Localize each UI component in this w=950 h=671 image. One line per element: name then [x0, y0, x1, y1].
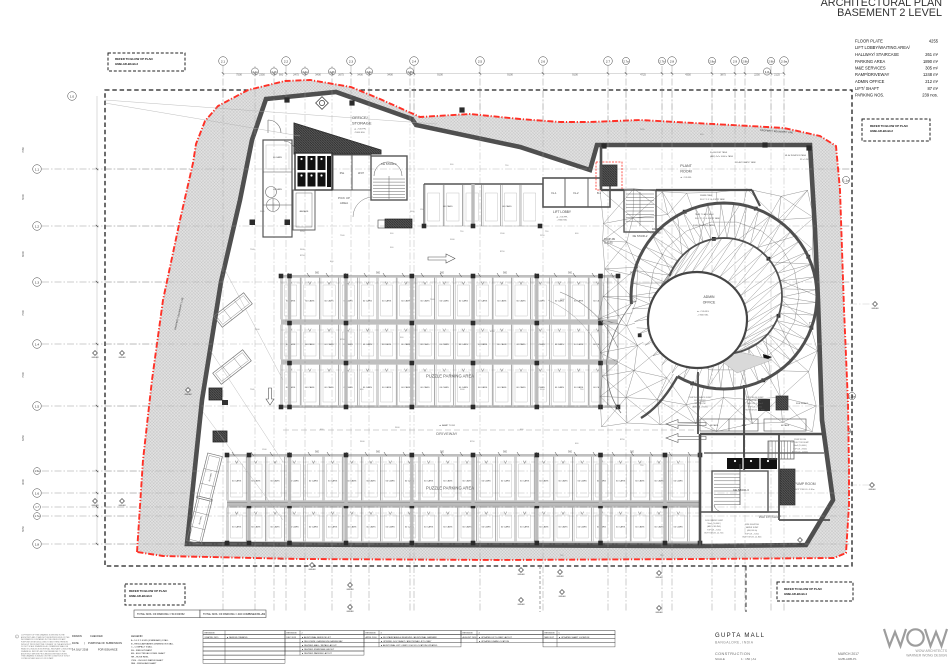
svg-text:5050: 5050	[21, 526, 25, 532]
svg-text:5m3 BELOW: 5m3 BELOW	[749, 400, 760, 402]
svg-text:900: 900	[315, 451, 320, 454]
svg-text:GMB-AR: GMB-AR	[91, 356, 99, 359]
svg-text:▲ RAMP TO B1: ▲ RAMP TO B1	[439, 424, 456, 427]
svg-text:REFER TO BLOW UP PLAN: REFER TO BLOW UP PLAN	[784, 587, 822, 591]
svg-text:60 CARS: 60 CARS	[366, 526, 376, 529]
svg-text:60 CARS: 60 CARS	[324, 343, 334, 346]
svg-text:2250: 2250	[754, 73, 760, 77]
svg-text:PLANT: PLANT	[680, 164, 692, 168]
svg-text:60 CARS: 60 CARS	[555, 343, 565, 346]
svg-text:1.6: 1.6	[35, 491, 40, 495]
svg-text:▲ NEW B3 CREATED: ▲ NEW B3 CREATED	[227, 636, 248, 639]
svg-text:2.3a: 2.3a	[366, 70, 372, 74]
svg-text:RAMP/DRIVEWAY: RAMP/DRIVEWAY	[855, 72, 890, 77]
svg-text:W-07: W-07	[358, 172, 364, 175]
svg-text:900: 900	[568, 272, 573, 275]
svg-text:MARCH 2017: MARCH 2017	[838, 652, 859, 656]
svg-text:60 CARS: 60 CARS	[443, 526, 453, 529]
svg-text:2.9: 2.9	[733, 59, 738, 63]
svg-text:▲ -7.05 FFL: ▲ -7.05 FFL	[556, 216, 568, 219]
svg-text:GMB-AR-B3-BL0: GMB-AR-B3-BL0	[129, 594, 152, 598]
svg-text:900: 900	[279, 73, 284, 77]
svg-text:60 CARS: 60 CARS	[251, 526, 261, 529]
svg-text:7500: 7500	[236, 73, 242, 77]
svg-text:60 CARS: 60 CARS	[574, 343, 584, 346]
svg-text:60 CARS: 60 CARS	[654, 526, 664, 529]
svg-text:60 CARS: 60 CARS	[516, 343, 526, 346]
svg-text:-7.800 SSL: -7.800 SSL	[557, 220, 568, 222]
svg-text:-7.800 SSL: -7.800 SSL	[354, 132, 366, 134]
svg-text:900: 900	[568, 451, 573, 454]
svg-text:3400: 3400	[315, 73, 321, 77]
svg-text:FHE SHAFT: FHE SHAFT	[796, 402, 809, 405]
svg-text:900: 900	[376, 272, 381, 275]
svg-text:60 CARS: 60 CARS	[270, 480, 280, 483]
svg-text:MAY 2017: MAY 2017	[545, 636, 555, 639]
svg-text:60 CARS: 60 CARS	[459, 300, 469, 303]
svg-text:900: 900	[630, 451, 635, 454]
svg-text:AREA: AREA	[340, 201, 348, 205]
svg-text:TOTAL NOS. OF PARKING = 54 FOR: TOTAL NOS. OF PARKING = 54 FOR B2	[137, 612, 185, 616]
svg-text:PARKING NOS.: PARKING NOS.	[855, 93, 884, 98]
svg-text:GMB-AR: GMB-AR	[871, 307, 879, 310]
svg-text:60 CARS: 60 CARS	[502, 205, 512, 208]
svg-text:FH - FIRE HYDRANT: FH - FIRE HYDRANT	[131, 649, 153, 652]
svg-text:(ABV) 2x7x 1000 ltr TANK: (ABV) 2x7x 1000 ltr TANK	[710, 155, 734, 158]
svg-text:(400,000 ltr): (400,000 ltr)	[747, 529, 758, 532]
svg-text:60 CARS: 60 CARS	[420, 300, 430, 303]
svg-text:SPARE TANK: SPARE TANK	[700, 194, 713, 197]
svg-text:FSL: FSL	[340, 172, 345, 175]
svg-text:BOTTOM LVL -11.80m: BOTTOM LVL -11.80m	[742, 536, 761, 538]
svg-text:A - 5.4 X 2.4 M/S (STANDA: A - 5.4 X 2.4 M/S (STANDARD) STALL	[131, 639, 169, 642]
svg-text:60 CARS: 60 CARS	[555, 386, 565, 389]
svg-text:52 x 1.2K 3 Mtr: 52 x 1.2K 3 Mtr	[800, 158, 814, 161]
svg-text:WOW ARCHITECTS: WOW ARCHITECTS	[916, 649, 948, 653]
svg-text:B-1: B-1	[597, 192, 601, 195]
svg-text:DOM. WATER SUMP: DOM. WATER SUMP	[705, 519, 724, 522]
svg-text:3875: 3875	[720, 73, 726, 77]
svg-text:30.5 T 2.5 1 4.5 WTR TANK: 30.5 T 2.5 1 4.5 WTR TANK	[700, 198, 725, 201]
svg-text:3000: 3000	[21, 479, 25, 485]
svg-text:FIRE FIGHTING: FIRE FIGHTING	[745, 524, 759, 526]
svg-text:1.1a: 1.1a	[843, 178, 849, 182]
svg-text:TOP LVL -7.05m: TOP LVL -7.05m	[707, 529, 721, 531]
svg-text:900: 900	[503, 272, 508, 275]
svg-text:PUMP ROOM: PUMP ROOM	[794, 439, 806, 441]
svg-text:60 CARS: 60 CARS	[363, 343, 373, 346]
svg-text:60 CARS: 60 CARS	[309, 526, 319, 529]
svg-text:2.4: 2.4	[412, 59, 417, 63]
svg-text:SCALE: SCALE	[715, 657, 725, 661]
svg-text:60 CARS: 60 CARS	[382, 300, 392, 303]
svg-text:900: 900	[440, 451, 445, 454]
svg-text:60 CARS: 60 CARS	[382, 386, 392, 389]
svg-text:1.8: 1.8	[35, 542, 40, 546]
svg-text:60 CARS: 60 CARS	[478, 343, 488, 346]
svg-text:60 CARS: 60 CARS	[386, 480, 396, 483]
svg-text:2.2a: 2.2a	[302, 70, 308, 74]
svg-text:2.8b: 2.8b	[742, 59, 748, 63]
svg-text:60 CARS: 60 CARS	[462, 480, 472, 483]
svg-text:REFER TO BLOW UP PLAN: REFER TO BLOW UP PLAN	[129, 589, 167, 593]
svg-text:60 CARS: 60 CARS	[578, 526, 588, 529]
svg-text:60 CARS: 60 CARS	[497, 300, 507, 303]
svg-text:(FULL/DELETED TANK): (FULL/DELETED TANK)	[693, 224, 715, 227]
svg-text:24 APRIL 2015: 24 APRIL 2015	[205, 636, 220, 639]
svg-text:GMB-AR: GMB-AR	[655, 576, 663, 579]
svg-text:▲ UPSIZED GOV. SHAFT / ADDIT: ▲ UPSIZED GOV. SHAFT / ADDITIONAL LIFT L…	[381, 640, 433, 643]
svg-text:60 CARS: 60 CARS	[420, 343, 430, 346]
svg-text:60 CARS: 60 CARS	[440, 386, 450, 389]
svg-text:C - COMPACT STALL: C - COMPACT STALL	[131, 646, 153, 649]
svg-text:FL-1: FL-1	[552, 192, 558, 195]
svg-text:60 CARS: 60 CARS	[539, 480, 549, 483]
svg-text:PURPOSE OF SUBMISSION: PURPOSE OF SUBMISSION	[88, 641, 122, 645]
svg-text:TOP LVL -9.80m: TOP LVL -9.80m	[793, 448, 807, 450]
svg-text:30.5 T 2.1 1 4.5 WTR TANK: 30.5 T 2.1 1 4.5 WTR TANK	[695, 217, 720, 220]
svg-text:60 CARS: 60 CARS	[497, 386, 507, 389]
svg-text:60 CARS: 60 CARS	[781, 424, 790, 427]
svg-text:212 m²: 212 m²	[925, 79, 938, 84]
svg-text:261 m²: 261 m²	[925, 52, 938, 57]
svg-text:GMB-AR: GMB-AR	[346, 588, 354, 591]
svg-text:60 CARS: 60 CARS	[462, 526, 472, 529]
svg-text:7060: 7060	[21, 147, 25, 153]
svg-text:60 CARS: 60 CARS	[616, 480, 626, 483]
svg-text:60 CARS: 60 CARS	[440, 343, 450, 346]
svg-text:APRIL 2016: APRIL 2016	[366, 636, 378, 639]
svg-text:LIFT LOBBY: LIFT LOBBY	[553, 210, 572, 214]
svg-text:2.8: 2.8	[670, 59, 675, 63]
svg-text:FLOOR PLATE: FLOOR PLATE	[855, 39, 883, 44]
svg-text:2.7b: 2.7b	[659, 59, 665, 63]
svg-text:BOTTOM LVL -11.80m: BOTTOM LVL -11.80m	[745, 409, 764, 411]
svg-text:ADMIN: ADMIN	[704, 295, 715, 299]
svg-text:305 m²: 305 m²	[925, 66, 938, 71]
svg-text:60 CARS: 60 CARS	[710, 424, 719, 427]
svg-text:60 CARS: 60 CARS	[273, 188, 282, 191]
svg-text:60 CARS: 60 CARS	[635, 480, 645, 483]
svg-text:OFFICE: OFFICE	[703, 301, 716, 305]
svg-text:60 CARS: 60 CARS	[501, 480, 511, 483]
svg-text:EB - ELECTRICAL/COMM. SHAFT: EB - ELECTRICAL/COMM. SHAFT	[131, 652, 166, 655]
svg-text:2.9a: 2.9a	[781, 59, 787, 63]
svg-text:ML ALTERATION TANK: ML ALTERATION TANK	[785, 154, 807, 157]
svg-text:WATER SUMP: WATER SUMP	[746, 526, 759, 529]
svg-text:10m3 (10,000L): 10m3 (10,000L)	[793, 445, 807, 447]
svg-text:-7.800 SSL: -7.800 SSL	[698, 315, 710, 317]
svg-text:60 CARS: 60 CARS	[366, 480, 376, 483]
svg-text:9100: 9100	[572, 73, 578, 77]
svg-text:W1 AUTOMATIC TANK: W1 AUTOMATIC TANK	[735, 161, 756, 164]
svg-text:▲ -7.05 FFL: ▲ -7.05 FFL	[697, 310, 710, 313]
svg-text:60 CARS: 60 CARS	[401, 343, 411, 346]
svg-text:60 CARS: 60 CARS	[382, 343, 392, 346]
svg-text:REFER TO BLOW UP PLAN: REFER TO BLOW UP PLAN	[115, 57, 153, 61]
svg-text:60 CARS: 60 CARS	[616, 526, 626, 529]
svg-text:60 CARS: 60 CARS	[482, 480, 492, 483]
svg-text:60 CARS: 60 CARS	[558, 480, 568, 483]
svg-text:GMB-ARB-P1: GMB-ARB-P1	[838, 657, 857, 661]
svg-text:60 CARS: 60 CARS	[232, 526, 242, 529]
svg-text:2.8a: 2.8a	[709, 59, 715, 63]
svg-text:▲ REVISED PARKING LAYOUT: ▲ REVISED PARKING LAYOUT	[302, 652, 333, 655]
svg-text:BOTT LVL -11.80m: BOTT LVL -11.80m	[792, 451, 808, 453]
svg-text:BIKE: BIKE	[742, 425, 747, 427]
svg-text:2475: 2475	[293, 73, 299, 77]
svg-text:B - REGULAR/VARIES DIMENS: B - REGULAR/VARIES DIMENSION STALL	[131, 642, 174, 645]
svg-text:CONSTRUCTION: CONSTRUCTION	[715, 652, 750, 656]
svg-text:1.1: 1.1	[35, 167, 40, 171]
svg-text:PICK UP: PICK UP	[338, 196, 350, 200]
svg-text:60 CARS: 60 CARS	[305, 300, 315, 303]
svg-text:GMB-AR: GMB-AR	[558, 595, 566, 598]
svg-text:PUZZLE PARKING AREA: PUZZLE PARKING AREA	[426, 486, 474, 491]
svg-text:▲ ADDITIONAL SERVICE LIFT: ▲ ADDITIONAL SERVICE LIFT	[302, 636, 332, 639]
svg-text:60 CARS: 60 CARS	[558, 526, 568, 529]
svg-text:60 CARS: 60 CARS	[443, 205, 453, 208]
svg-text:GMB-AR: GMB-AR	[91, 504, 99, 507]
svg-text:(ABV+CEILING): (ABV+CEILING)	[707, 525, 721, 528]
svg-text:1890 m²: 1890 m²	[923, 59, 939, 64]
svg-text:3400: 3400	[357, 73, 363, 77]
svg-text:60 CARS: 60 CARS	[482, 526, 492, 529]
svg-text:▲ UPDATED LIFT LOBBY LAYOUT: ▲ UPDATED LIFT LOBBY LAYOUT	[479, 636, 513, 639]
svg-text:5m3 BELOW: 5m3 BELOW	[694, 403, 705, 405]
svg-text:(ABV LVL -9.80m3: (ABV LVL -9.80m3	[747, 402, 763, 405]
svg-text:(ABV LVL -9.80m): (ABV LVL -9.80m)	[692, 405, 707, 408]
svg-text:2.7a: 2.7a	[623, 59, 629, 63]
svg-text:60 CARS: 60 CARS	[305, 386, 315, 389]
svg-text:1.5: 1.5	[35, 404, 40, 408]
svg-text:50m3 (50,000 l): 50m3 (50,000 l)	[707, 523, 721, 525]
svg-text:GMB-AR: GMB-AR	[517, 573, 525, 576]
svg-text:GMB-AR: GMB-AR	[184, 393, 192, 396]
svg-text:GUPTA MALL: GUPTA MALL	[715, 633, 765, 639]
svg-text:6250: 6250	[21, 435, 25, 441]
svg-text:BANGALORE, INDIA: BANGALORE, INDIA	[715, 641, 754, 645]
svg-text:▲ RELOCATE LOADING/UNLOADING B: ▲ RELOCATE LOADING/UNLOADING BAY	[302, 640, 344, 643]
svg-text:900: 900	[376, 451, 381, 454]
svg-text:6000: 6000	[21, 251, 25, 257]
svg-text:BOTTOM LVL -9.80m: BOTTOM LVL -9.80m	[795, 489, 815, 491]
svg-text:60 CARS: 60 CARS	[539, 526, 549, 529]
svg-text:2.9b: 2.9b	[768, 59, 774, 63]
svg-text:REFER TO BLOW UP PLAN: REFER TO BLOW UP PLAN	[870, 124, 908, 128]
svg-text:60 CARS: 60 CARS	[478, 300, 488, 303]
svg-text:(1:10 B): (1:10 B)	[604, 241, 613, 244]
svg-text:LIFT LOBBY/WAITING AREA/: LIFT LOBBY/WAITING AREA/	[855, 45, 911, 50]
svg-text:PUMPING / WASTE SUMP: PUMPING / WASTE SUMP	[688, 396, 712, 399]
svg-text:60 CARS: 60 CARS	[363, 386, 373, 389]
svg-text:60 CARS: 60 CARS	[478, 386, 488, 389]
svg-text:60 CARS: 60 CARS	[520, 480, 530, 483]
svg-text:HALLWAY/ STAIRCASE: HALLWAY/ STAIRCASE	[855, 52, 899, 57]
svg-text:WARNER WONG DESIGN: WARNER WONG DESIGN	[906, 654, 947, 658]
svg-text:DATE: DATE	[72, 641, 79, 645]
svg-text:CHECKED: CHECKED	[90, 634, 103, 638]
svg-text:60 CARS: 60 CARS	[420, 386, 430, 389]
svg-text:HR - HOSE REEL: HR - HOSE REEL	[131, 657, 149, 659]
svg-text:▲ REVISED STAIRCASE LAYOUT: ▲ REVISED STAIRCASE LAYOUT	[302, 648, 335, 651]
svg-text:TANK TO AVG TANK: TANK TO AVG TANK	[695, 213, 714, 216]
svg-text:60 CARS: 60 CARS	[424, 526, 434, 529]
svg-text:60 CARS: 60 CARS	[232, 480, 242, 483]
svg-text:7500: 7500	[21, 310, 25, 316]
svg-text:FE STAIR-2: FE STAIR-2	[633, 234, 648, 238]
svg-text:LIFT/ SHAFT: LIFT/ SHAFT	[855, 86, 880, 91]
svg-text:▲ -7.05 FFL: ▲ -7.05 FFL	[680, 176, 692, 179]
svg-text:CWS - CHILLED WATER SHAFT: CWS - CHILLED WATER SHAFT	[131, 659, 164, 662]
svg-text:60 CARS: 60 CARS	[328, 480, 338, 483]
svg-text:GMB-AR: GMB-AR	[868, 488, 876, 491]
svg-text:4350: 4350	[685, 73, 691, 77]
svg-text:TOP LVL -7.05m: TOP LVL -7.05m	[745, 533, 759, 535]
svg-text:5000: 5000	[21, 194, 25, 200]
svg-text:4725: 4725	[640, 73, 646, 77]
svg-text:DRIVEWAY: DRIVEWAY	[436, 432, 457, 436]
svg-text:1.0: 1.0	[765, 70, 770, 74]
svg-text:60 CARS: 60 CARS	[386, 526, 396, 529]
svg-text:c: c	[16, 636, 17, 638]
svg-text:1.0: 1.0	[70, 94, 75, 98]
svg-text:60 CARS: 60 CARS	[674, 480, 684, 483]
svg-text:LEGEND: LEGEND	[131, 634, 143, 638]
svg-text:60 CARS: 60 CARS	[363, 300, 373, 303]
svg-text:2.2b: 2.2b	[329, 70, 335, 74]
svg-text:2.3b: 2.3b	[407, 70, 413, 74]
svg-text:TOP LVL -7.05m: TOP LVL -7.05m	[748, 406, 762, 408]
svg-text:PUZZLE PARKING AREA: PUZZLE PARKING AREA	[426, 374, 474, 379]
svg-text:2.1: 2.1	[221, 59, 226, 63]
svg-text:3400: 3400	[387, 73, 393, 77]
svg-text:1.7: 1.7	[35, 505, 39, 509]
svg-text:GMB-AR: GMB-AR	[308, 568, 316, 571]
svg-text:60 CARS: 60 CARS	[401, 386, 411, 389]
svg-text:▲ FE STAIRCASES-4 REMOVED / AD: ▲ FE STAIRCASES-4 REMOVED / ADDITIONAL C…	[381, 636, 438, 639]
svg-text:87 m²: 87 m²	[928, 86, 939, 91]
svg-text:1 : 150 | A1: 1 : 150 | A1	[741, 657, 756, 661]
svg-text:FL-2: FL-2	[574, 192, 580, 195]
svg-text:FOR ISSUANCE: FOR ISSUANCE	[98, 648, 118, 652]
svg-text:60 CARS: 60 CARS	[251, 480, 261, 483]
svg-text:BASEMENT 2 LEVEL: BASEMENT 2 LEVEL	[837, 7, 942, 19]
svg-text:WATER SUMP: WATER SUMP	[759, 515, 782, 519]
svg-text:FE STAIR-3: FE STAIR-3	[733, 488, 749, 492]
svg-text:30+BUCKET TANK: 30+BUCKET TANK	[710, 151, 728, 154]
svg-text:60 CARS: 60 CARS	[635, 526, 645, 529]
svg-text:1.4: 1.4	[35, 342, 40, 346]
svg-text:60 CARS: 60 CARS	[574, 300, 584, 303]
svg-text:GMB-AR: GMB-AR	[517, 603, 525, 606]
svg-text:BOTTOM LVL -11.75m: BOTTOM LVL -11.75m	[704, 532, 723, 534]
svg-text:900: 900	[503, 451, 508, 454]
svg-text:GMB-AR: GMB-AR	[796, 543, 804, 546]
svg-text:7500: 7500	[21, 372, 25, 378]
svg-text:60 CARS: 60 CARS	[654, 480, 664, 483]
svg-text:1.7a: 1.7a	[34, 514, 40, 518]
svg-text:60 CARS: 60 CARS	[674, 526, 684, 529]
svg-text:60 CARS: 60 CARS	[501, 526, 511, 529]
svg-text:60 CARS: 60 CARS	[516, 300, 526, 303]
svg-text:▲ UPDATED DRAIN LOCATION: ▲ UPDATED DRAIN LOCATION	[479, 640, 510, 643]
svg-text:GMB-AR-B3-BL4: GMB-AR-B3-BL4	[784, 592, 807, 596]
svg-text:GMB-AR: GMB-AR	[118, 356, 126, 359]
svg-text:2.6: 2.6	[541, 59, 546, 63]
svg-text:STORAGE: STORAGE	[352, 121, 372, 126]
svg-text:PARKING AREA: PARKING AREA	[855, 59, 885, 64]
svg-text:1.5a: 1.5a	[34, 469, 40, 473]
svg-text:GMB-AR: GMB-AR	[655, 611, 663, 614]
svg-text:9100: 9100	[507, 73, 513, 77]
svg-text:60 CARS: 60 CARS	[347, 526, 357, 529]
svg-text:▲ UPDATED SHAFT LOCATION: ▲ UPDATED SHAFT LOCATION	[559, 636, 590, 639]
svg-text:14 JULY 2016: 14 JULY 2016	[72, 648, 89, 652]
svg-text:▲ -7.05 FFL: ▲ -7.05 FFL	[354, 128, 367, 131]
svg-text:60 CARS: 60 CARS	[324, 386, 334, 389]
svg-text:60 CARS: 60 CARS	[516, 386, 526, 389]
svg-text:GMB-AR: GMB-AR	[556, 575, 564, 578]
svg-text:60 CARS: 60 CARS	[424, 480, 434, 483]
svg-text:900: 900	[315, 272, 320, 275]
svg-text:1.3: 1.3	[35, 280, 40, 284]
svg-text:(1:10 B): (1:10 B)	[652, 231, 661, 234]
svg-text:▲ ADDITIONAL LIFT LOBBY / FHC-: ▲ ADDITIONAL LIFT LOBBY / FHC-R LOCATION…	[381, 644, 438, 647]
svg-text:60 CARS: 60 CARS	[520, 526, 530, 529]
svg-text:2.1a: 2.1a	[252, 70, 258, 74]
svg-text:M&E SERVICES: M&E SERVICES	[855, 66, 886, 71]
svg-text:FE STAIR-1: FE STAIR-1	[381, 162, 397, 166]
svg-text:60 CARS: 60 CARS	[270, 526, 280, 529]
svg-text:AUGUST 2016: AUGUST 2016	[463, 636, 478, 639]
svg-text:OFFICE/: OFFICE/	[352, 115, 369, 120]
svg-text:60 CARS: 60 CARS	[309, 480, 319, 483]
svg-text:2.5: 2.5	[478, 59, 483, 63]
svg-text:COPIED EITHER WHOLLY OR IN PAR: COPIED EITHER WHOLLY OR IN PART.	[21, 657, 54, 660]
svg-text:2.1b: 2.1b	[271, 70, 277, 74]
svg-text:60 CARS: 60 CARS	[578, 480, 588, 483]
svg-text:ROOM: ROOM	[680, 170, 691, 174]
svg-text:COLLECTOR SUMP: COLLECTOR SUMP	[791, 442, 809, 444]
svg-text:239 nos.: 239 nos.	[922, 93, 938, 98]
svg-text:4255: 4255	[929, 39, 939, 44]
svg-text:60 CARS: 60 CARS	[440, 300, 450, 303]
svg-text:60 CARS: 60 CARS	[347, 480, 357, 483]
svg-text:1248 m²: 1248 m²	[923, 72, 939, 77]
svg-text:ADMIN OFFICE: ADMIN OFFICE	[855, 79, 885, 84]
svg-text:2675: 2675	[338, 73, 344, 77]
svg-text:2350: 2350	[259, 73, 265, 77]
svg-text:1.2: 1.2	[35, 224, 40, 228]
svg-text:60 CARS: 60 CARS	[328, 526, 338, 529]
svg-text:DRAWN: DRAWN	[72, 634, 82, 638]
svg-text:2.3: 2.3	[349, 59, 354, 63]
svg-text:GMB-AR-B3-BL3: GMB-AR-B3-BL3	[115, 62, 138, 66]
svg-text:60 CARS: 60 CARS	[324, 300, 334, 303]
svg-text:TOTAL NOS. OF PARKING = 432 CO: TOTAL NOS. OF PARKING = 432 COMBINED B1+…	[203, 612, 266, 616]
svg-text:60 CARS: 60 CARS	[401, 300, 411, 303]
svg-text:60 CARS: 60 CARS	[497, 343, 507, 346]
svg-text:2.2: 2.2	[284, 59, 289, 63]
svg-text:GMB-AR-B3-BL2: GMB-AR-B3-BL2	[870, 129, 893, 133]
svg-text:SUSPENDED: SUSPENDED	[694, 400, 706, 402]
svg-text:▲ REVISED MALL / RETAIL LAYOUT: ▲ REVISED MALL / RETAIL LAYOUT	[302, 644, 338, 647]
svg-text:60 CARS: 60 CARS	[459, 343, 469, 346]
svg-text:60 CARS: 60 CARS	[305, 343, 315, 346]
svg-text:2125: 2125	[774, 73, 780, 77]
svg-text:PUMP ROOM: PUMP ROOM	[794, 482, 815, 486]
